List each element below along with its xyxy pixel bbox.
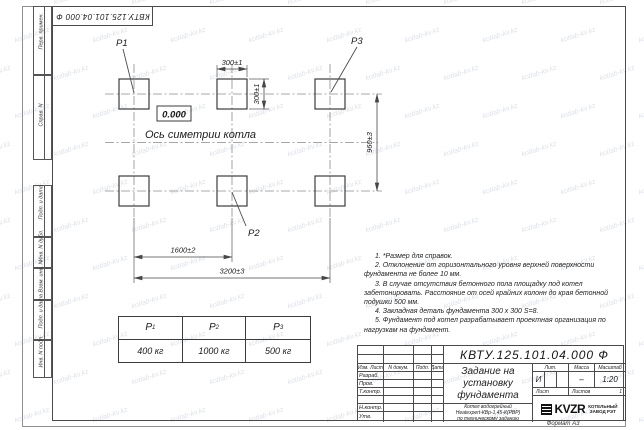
- tb-sheets-value: 1: [619, 389, 622, 395]
- format-label: Формат А3: [500, 421, 626, 427]
- dim-1600: 1600±2: [171, 246, 197, 255]
- tb-cell: [432, 372, 444, 380]
- tb-doc-title: Задание на установку фундамента: [444, 364, 533, 404]
- tb-company-cell: KVZR КОТЕЛЬНЫЙ ЗАВОД РЭТ: [533, 396, 625, 422]
- tb-cell: [432, 412, 444, 422]
- level-mark-value: 0.000: [162, 110, 186, 121]
- tb-sheet-row: Лист: [533, 388, 569, 396]
- tb-cell: [432, 404, 444, 412]
- tb-cell: [414, 372, 432, 380]
- tb-cell: [432, 396, 444, 404]
- tb-cell: [384, 380, 414, 388]
- tb-header-izm-list: Изм. Лист: [358, 364, 384, 372]
- foundation-plan-drawing: 0.000 P1 P3 P2 300±1 300±1 960±3 1600±2 …: [52, 6, 392, 306]
- dim-300-side: 300±1: [252, 84, 261, 105]
- margin-column-podp-data-2: Подп. и дата: [33, 300, 52, 340]
- tb-cell: [414, 412, 432, 422]
- tb-cell: [384, 412, 414, 422]
- revision-grid-cell: [384, 355, 414, 364]
- load-table-header-p2: P2: [183, 317, 247, 340]
- revision-grid-cell: [432, 355, 444, 364]
- point-label-p3: P3: [351, 36, 363, 47]
- tb-scale-value: 1:20: [595, 372, 625, 388]
- kvzr-logo-text: KVZR: [555, 402, 586, 416]
- corner-designation-stamp: КВТУ.125.101.04.000 Ф: [52, 6, 153, 26]
- revision-grid-cell: [414, 346, 432, 355]
- dim-960: 960±3: [365, 131, 374, 153]
- tb-scale-label: Масштаб: [595, 364, 625, 372]
- tb-sheets-label: Листов: [572, 389, 590, 395]
- point-label-p1: P1: [116, 38, 128, 49]
- tb-cell: [384, 396, 414, 404]
- point-label-p2: P2: [248, 228, 260, 239]
- tb-mass-label: Масса: [569, 364, 595, 372]
- tb-role-nkontr: Н.контр.: [358, 404, 384, 412]
- margin-column-sprav-n: Справ. N: [33, 75, 52, 160]
- tb-cell: [384, 404, 414, 412]
- note-line: 4. Закладная деталь фундамента 300 x 300…: [364, 307, 620, 316]
- tb-cell: [432, 388, 444, 396]
- tb-role-utv: Утв.: [358, 412, 384, 422]
- kvzr-logo-caption: КОТЕЛЬНЫЙ ЗАВОД РЭТ: [588, 404, 617, 415]
- tb-lit-label: Лит.: [533, 364, 569, 372]
- tb-lit-value: И: [533, 372, 545, 388]
- note-line: 3. В случае отсутствия бетонного пола пл…: [364, 280, 620, 308]
- kvzr-logo-icon: [541, 404, 552, 415]
- margin-column-inv-podl: Инв. N подл.: [33, 340, 52, 378]
- margin-label: Инв. N подл.: [39, 351, 45, 368]
- revision-grid-cell: [384, 346, 414, 355]
- note-line: 5. Фундамент под котел разрабатывает про…: [364, 316, 620, 334]
- tb-role-blank: [358, 396, 384, 404]
- title-block-designation: КВТУ.125.101.04.000 Ф: [444, 346, 625, 364]
- tb-cell: [414, 388, 432, 396]
- margin-label: Справ. N: [39, 109, 45, 126]
- note-line: 2. Отклонение от горизонтального уровня …: [364, 261, 620, 279]
- margin-column-perv-primen: Перв. примен.: [33, 6, 52, 75]
- margin-label: Подп. и дата: [39, 312, 45, 329]
- tb-role-prov: Пров.: [358, 380, 384, 388]
- tb-role-razrab: Разраб.: [358, 372, 384, 380]
- load-table: P1 P2 P3 400 кг 1000 кг 500 кг: [118, 316, 311, 363]
- tb-cell: [384, 388, 414, 396]
- notes-block: 1. *Размер для справок. 2. Отклонение от…: [364, 252, 620, 335]
- revision-grid-cell: [358, 355, 384, 364]
- tb-header-podp: Подп.: [414, 364, 432, 372]
- centerlines: [105, 64, 382, 218]
- note-line: 1. *Размер для справок.: [364, 252, 620, 261]
- tb-lit-cell-2: [545, 372, 557, 388]
- load-table-value-p1: 400 кг: [119, 340, 183, 363]
- load-table-header-p3: P3: [246, 317, 310, 340]
- tb-role-tkontr: Т.контр.: [358, 388, 384, 396]
- load-table-header-p1: P1: [119, 317, 183, 340]
- tb-lit-cell-3: [557, 372, 569, 388]
- load-table-value-p3: 500 кг: [246, 340, 310, 363]
- axis-symmetry-caption: Ось симетрии котла: [145, 129, 256, 141]
- dim-300-top: 300±1: [222, 58, 243, 67]
- tb-cell: [414, 404, 432, 412]
- corner-designation-text: КВТУ.125.101.04.000 Ф: [56, 12, 150, 21]
- tb-cell: [414, 380, 432, 388]
- tb-cell: [384, 372, 414, 380]
- kvzr-logo-caption-line: ЗАВОД РЭТ: [588, 409, 617, 415]
- tb-sheet-label: Лист: [536, 389, 549, 395]
- margin-label: Инв. N дубл.: [39, 244, 45, 261]
- tb-cell: [432, 380, 444, 388]
- tb-mass-value: –: [569, 372, 595, 388]
- revision-grid-cell: [432, 346, 444, 355]
- tb-header-data: Дата: [432, 364, 444, 372]
- dim-3200: 3200±3: [220, 267, 246, 276]
- tb-sheets-row: Листов 1: [569, 388, 625, 396]
- margin-label: Перв. примен.: [39, 32, 45, 49]
- load-table-value-p2: 1000 кг: [183, 340, 247, 363]
- margin-label: Взам. инв. N: [39, 276, 45, 293]
- tb-doc-subtitle: Котел водогрейный Heatexpert-КВр-1,45-К(…: [444, 404, 533, 422]
- tb-cell: [414, 396, 432, 404]
- revision-grid-cell: [358, 346, 384, 355]
- tb-header-n-dokum: N докум.: [384, 364, 414, 372]
- revision-grid-cell: [414, 355, 432, 364]
- title-block: КВТУ.125.101.04.000 Ф Изм. Лист N докум.…: [357, 345, 624, 421]
- margin-label: Подп. и дата: [39, 203, 45, 220]
